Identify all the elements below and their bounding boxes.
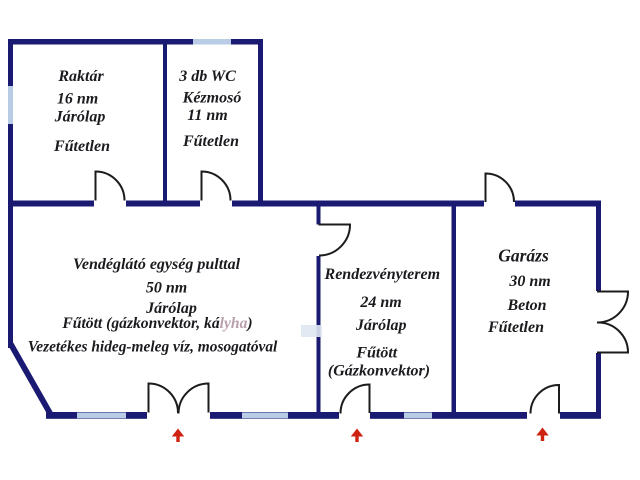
svg-text:Rendezvényterem: Rendezvényterem	[324, 266, 441, 283]
svg-text:11 nm: 11 nm	[187, 107, 227, 124]
svg-text:Vezetékes hideg-meleg víz, mos: Vezetékes hideg-meleg víz, mosogatóval	[28, 339, 278, 356]
svg-text:Kézmosó: Kézmosó	[182, 90, 242, 107]
svg-text:3 db WC: 3 db WC	[178, 68, 236, 85]
svg-text:Vendéglátó egység pulttal: Vendéglátó egység pulttal	[73, 256, 241, 273]
svg-text:Fűtött: Fűtött	[355, 345, 397, 362]
svg-text:(Gázkonvektor): (Gázkonvektor)	[328, 363, 430, 380]
svg-text:Garázs: Garázs	[498, 246, 549, 266]
svg-text:30 nm: 30 nm	[508, 273, 550, 290]
svg-text:Fűtetlen: Fűtetlen	[487, 319, 544, 336]
svg-text:24 nm: 24 nm	[359, 294, 401, 311]
svg-text:Raktár: Raktár	[57, 68, 104, 85]
svg-text:Fűtött (gázkonvektor, kályha): Fűtött (gázkonvektor, kályha)	[61, 315, 252, 332]
svg-text:Járólap: Járólap	[355, 317, 407, 334]
svg-text:16 nm: 16 nm	[57, 91, 98, 108]
svg-text:Fűtetlen: Fűtetlen	[182, 133, 239, 150]
svg-text:Járólap: Járólap	[54, 109, 106, 126]
svg-text:Beton: Beton	[506, 297, 546, 314]
svg-text:50 nm: 50 nm	[146, 280, 187, 297]
svg-text:Fűtetlen: Fűtetlen	[53, 138, 110, 155]
